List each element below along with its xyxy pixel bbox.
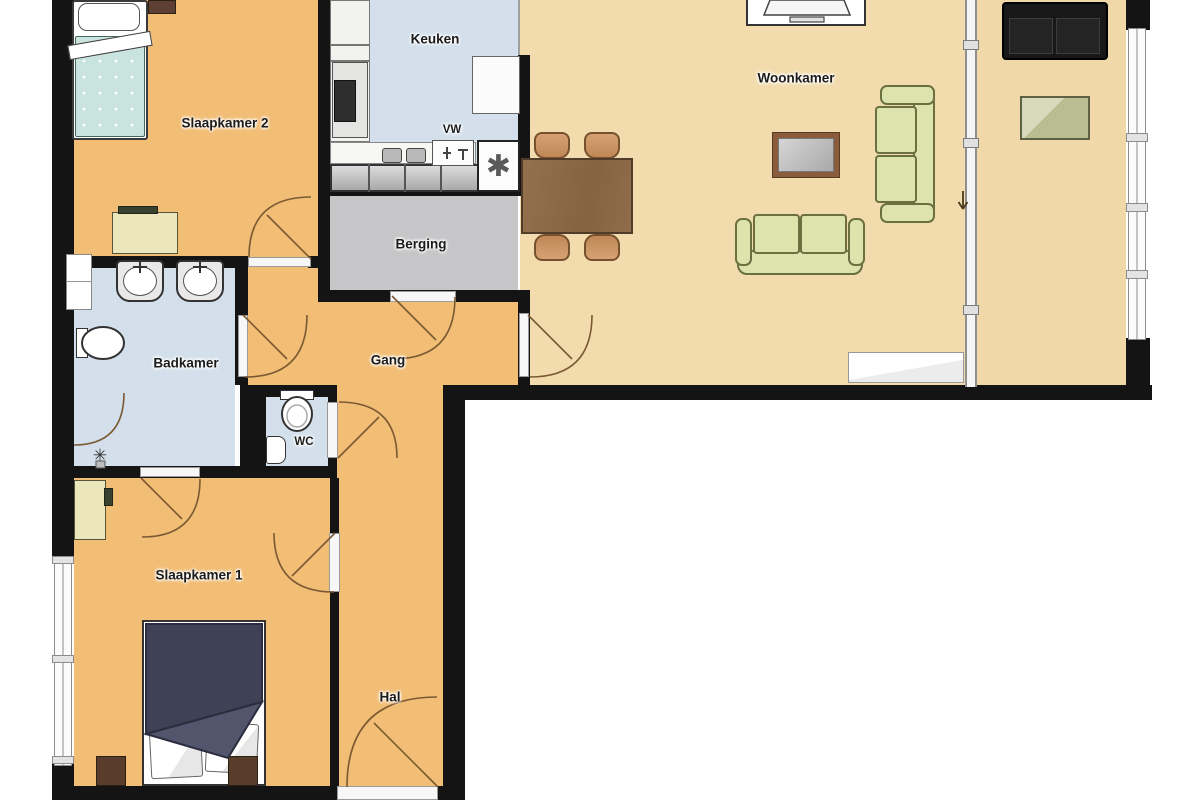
label-woonkamer: Woonkamer [757,71,834,86]
door-badkamer-slaapkamer1 [141,478,200,537]
label-badkamer: Badkamer [153,356,218,371]
shower-drain [96,461,105,468]
faucet-sink-left-icon [133,261,147,273]
door-slaapkamer2 [249,197,311,259]
door-woonkamer [528,315,592,377]
faucet-sink-right-icon [193,261,207,273]
label-slaapkamer1: Slaapkamer 1 [155,568,242,583]
door-entrance [347,697,438,787]
label-gang: Gang [371,353,406,368]
faucet-kitchen-icon [443,147,468,160]
plan-symbol-overlay: ✳ [0,0,1200,800]
label-dishwasher: VW [443,124,462,136]
label-keuken: Keuken [411,32,460,47]
door-shower [74,393,124,445]
label-slaapkamer2: Slaapkamer 2 [181,116,268,131]
tv-icon [764,0,850,15]
toilet-bowl-badkamer [82,327,124,359]
floor-plan: ✱ ✳ [0,0,1200,800]
door-slaapkamer1-hal [274,533,335,592]
door-berging [392,296,455,359]
door-badkamer [243,315,307,377]
label-hal: Hal [379,690,400,705]
label-wc: WC [294,436,313,448]
door-wc [338,402,397,458]
tv-stand [790,17,824,22]
label-berging: Berging [395,237,446,252]
partition-arrow-icon [959,191,968,209]
